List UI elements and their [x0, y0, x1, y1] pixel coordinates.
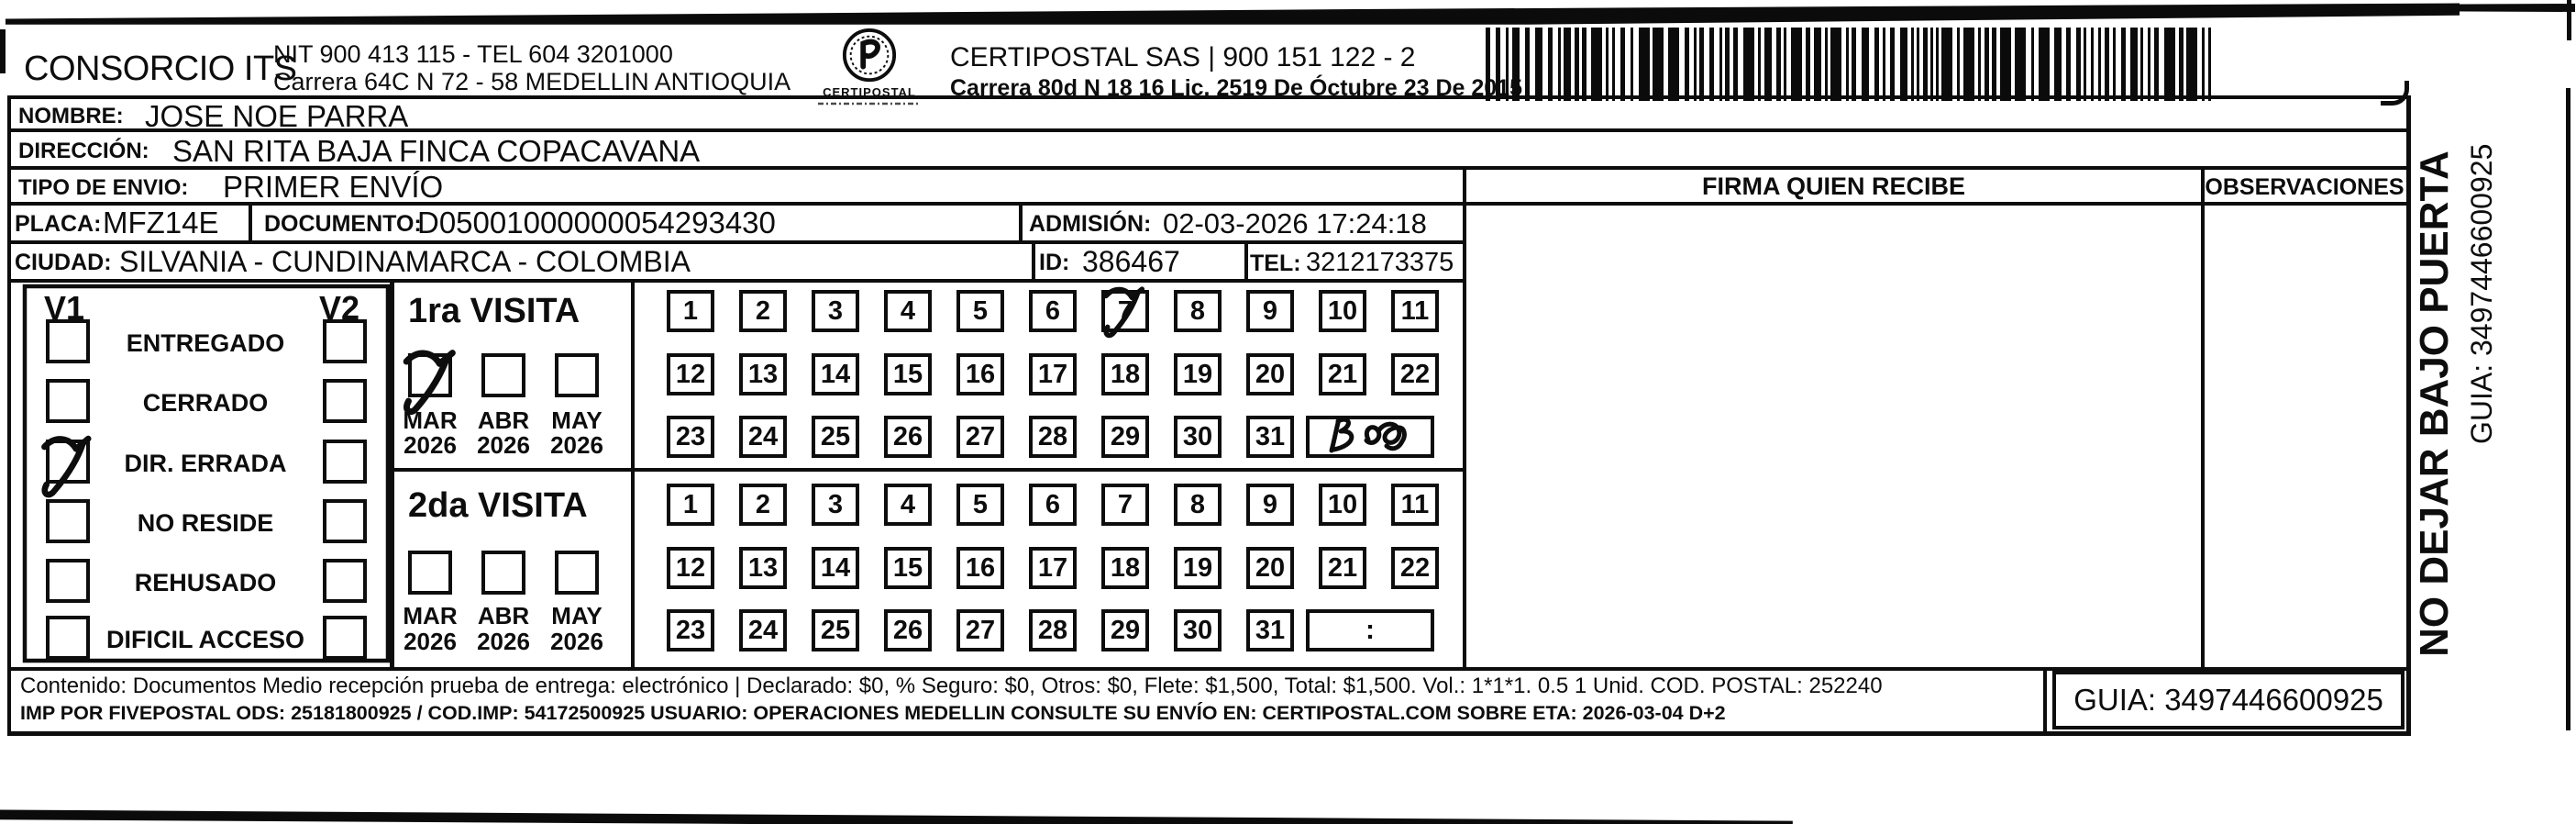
status-checkbox-v1 — [46, 559, 90, 603]
status-checkbox-v2 — [323, 440, 367, 484]
visit2-month-name: MAR — [401, 603, 459, 630]
visit2-day-5: 5 — [956, 484, 1004, 526]
visit1-day-1: 1 — [667, 290, 714, 332]
visit1-day-23: 23 — [667, 416, 714, 458]
visit2-day-28: 28 — [1029, 609, 1077, 651]
visit2-month-checkbox — [481, 551, 525, 595]
scan-artifact-right-line — [2566, 88, 2570, 730]
visit2-title: 2da VISITA — [408, 486, 588, 527]
visit2-day-31: 31 — [1246, 609, 1294, 651]
visit2-day-4: 4 — [884, 484, 932, 526]
tipo-envio-label: TIPO DE ENVIO: — [18, 175, 188, 201]
documento-value: D05001000000054293430 — [417, 206, 776, 240]
visit1-month-mark — [399, 342, 463, 419]
visit1-month-checkbox — [555, 353, 599, 397]
visit2-month-year: 2026 — [474, 629, 533, 656]
visit2-day-19: 19 — [1174, 547, 1222, 589]
scan-artifact-right-tick — [2567, 0, 2571, 40]
ciudad-value: SILVANIA - CUNDINAMARCA - COLOMBIA — [119, 245, 691, 279]
status-checkbox-v2 — [323, 379, 367, 423]
status-label: DIR. ERRADA — [92, 450, 319, 478]
visit2-month-checkbox — [408, 551, 452, 595]
visit2-day-21: 21 — [1319, 547, 1366, 589]
visit1-day-3: 3 — [812, 290, 859, 332]
firma-header: FIRMA QUIEN RECIBE — [1466, 173, 2201, 201]
visit2-day-6: 6 — [1029, 484, 1077, 526]
visit1-title: 1ra VISITA — [408, 292, 580, 332]
visit2-day-3: 3 — [812, 484, 859, 526]
visit1-month-year: 2026 — [474, 432, 533, 460]
handwritten-scribble — [1308, 414, 1432, 460]
certipostal-logo-icon — [824, 28, 915, 84]
scan-artifact-top-streak — [2403, 4, 2575, 12]
status-checkbox-v2 — [323, 616, 367, 660]
company-right-line1: CERTIPOSTAL SAS | 900 151 122 - 2 — [950, 42, 1416, 74]
handwritten-check-status-v1 — [35, 429, 101, 502]
admision-value: 02-03-2026 17:24:18 — [1163, 207, 1427, 240]
visit2-day-24: 24 — [739, 609, 787, 651]
visit2-day-20: 20 — [1246, 547, 1294, 589]
visit2-month-checkbox — [555, 551, 599, 595]
visit2-day-7: 7 — [1101, 484, 1149, 526]
scanned-delivery-form: CONSORCIO ITS NIT 900 413 115 - TEL 604 … — [0, 0, 2576, 824]
barcode — [1484, 28, 2223, 101]
visit1-day-15: 15 — [884, 353, 932, 395]
side-warning: NO DEJAR BAJO PUERTA — [2412, 117, 2459, 690]
company-right-line2: Carrera 80d N 18 16 Lic. 2519 De Óctubre… — [950, 75, 1522, 102]
status-label: DIFICIL ACCESO — [92, 626, 319, 654]
visit2-day-15: 15 — [884, 547, 932, 589]
tipo-envio-value: PRIMER ENVÍO — [223, 170, 443, 205]
visit1-day-6: 6 — [1029, 290, 1077, 332]
visit1-day-14: 14 — [812, 353, 859, 395]
status-label: REHUSADO — [92, 569, 319, 597]
visit1-day-13: 13 — [739, 353, 787, 395]
status-label: CERRADO — [92, 389, 319, 418]
status-checkbox-v1 — [46, 379, 90, 423]
visit2-month-year: 2026 — [401, 629, 459, 656]
visit2-day-13: 13 — [739, 547, 787, 589]
visit2-day-27: 27 — [956, 609, 1004, 651]
company-left-name: CONSORCIO ITS — [24, 50, 297, 90]
status-checkbox-v1 — [46, 319, 90, 363]
status-checkbox-v2 — [323, 319, 367, 363]
tel-value: 3212173375 — [1306, 248, 1454, 278]
placa-label: PLACA: — [15, 211, 101, 238]
visit1-day-5: 5 — [956, 290, 1004, 332]
scan-artifact-left-mark — [0, 29, 6, 73]
visit1-day-26: 26 — [884, 416, 932, 458]
visit2-day-9: 9 — [1246, 484, 1294, 526]
status-label: NO RESIDE — [92, 509, 319, 538]
direccion-value: SAN RITA BAJA FINCA COPACAVANA — [172, 134, 700, 169]
logo-caption: CERTIPOSTAL — [807, 86, 932, 100]
logo-tagline-squiggle — [816, 101, 923, 106]
nombre-value: JOSE NOE PARRA — [145, 99, 408, 134]
visit1-day-mark — [1097, 281, 1154, 341]
visit2-time-box: : — [1306, 609, 1434, 651]
status-label: ENTREGADO — [92, 329, 319, 358]
placa-value: MFZ14E — [103, 206, 219, 240]
side-guia: GUIA: 3497446600925 — [2465, 152, 2499, 444]
visit1-day-2: 2 — [739, 290, 787, 332]
visit1-day-10: 10 — [1319, 290, 1366, 332]
visit2-day-17: 17 — [1029, 547, 1077, 589]
visit2-day-16: 16 — [956, 547, 1004, 589]
visit1-day-4: 4 — [884, 290, 932, 332]
visit1-month-year: 2026 — [547, 432, 606, 460]
status-checkbox-v2 — [323, 559, 367, 603]
observaciones-header: OBSERVACIONES — [2203, 174, 2406, 201]
visit2-month-name: MAY — [547, 603, 606, 630]
admision-label: ADMISIÓN: — [1029, 211, 1151, 238]
footer-line2: IMP POR FIVEPOSTAL ODS: 25181800925 / CO… — [20, 702, 1726, 725]
visit2-day-18: 18 — [1101, 547, 1149, 589]
visit1-day-12: 12 — [667, 353, 714, 395]
visit1-day-9: 9 — [1246, 290, 1294, 332]
visit1-note-box — [1306, 416, 1434, 458]
visit1-month-year: 2026 — [401, 432, 459, 460]
visit2-day-25: 25 — [812, 609, 859, 651]
visit1-day-21: 21 — [1319, 353, 1366, 395]
visit1-day-18: 18 — [1101, 353, 1149, 395]
id-value: 386467 — [1082, 245, 1180, 279]
visit2-day-29: 29 — [1101, 609, 1149, 651]
status-checkbox-v1 — [46, 499, 90, 543]
direccion-label: DIRECCIÓN: — [18, 139, 149, 164]
visit1-day-8: 8 — [1174, 290, 1222, 332]
visit1-day-25: 25 — [812, 416, 859, 458]
footer-guia: GUIA: 3497446600925 — [2054, 683, 2403, 718]
visit1-day-19: 19 — [1174, 353, 1222, 395]
visit2-day-8: 8 — [1174, 484, 1222, 526]
footer-line1: Contenido: Documentos Medio recepción pr… — [20, 674, 1883, 699]
visit2-day-10: 10 — [1319, 484, 1366, 526]
visit2-day-26: 26 — [884, 609, 932, 651]
visit1-day-22: 22 — [1391, 353, 1439, 395]
visit1-day-16: 16 — [956, 353, 1004, 395]
status-checkbox-v2 — [323, 499, 367, 543]
visit1-day-27: 27 — [956, 416, 1004, 458]
visit2-day-30: 30 — [1174, 609, 1222, 651]
visit1-day-20: 20 — [1246, 353, 1294, 395]
visit1-day-24: 24 — [739, 416, 787, 458]
visit2-day-2: 2 — [739, 484, 787, 526]
company-left-line2: Carrera 64C N 72 - 58 MEDELLIN ANTIOQUIA — [273, 68, 790, 96]
visit2-day-1: 1 — [667, 484, 714, 526]
visit1-day-30: 30 — [1174, 416, 1222, 458]
ciudad-label: CIUDAD: — [15, 250, 112, 276]
visit2-day-12: 12 — [667, 547, 714, 589]
visit2-day-11: 11 — [1391, 484, 1439, 526]
visit1-month-checkbox — [481, 353, 525, 397]
tel-label: TEL: — [1250, 251, 1301, 277]
status-checkbox-v1 — [46, 616, 90, 660]
visit1-day-31: 31 — [1246, 416, 1294, 458]
visit2-day-23: 23 — [667, 609, 714, 651]
visit1-day-28: 28 — [1029, 416, 1077, 458]
id-label: ID: — [1039, 250, 1069, 276]
company-left-line1: NIT 900 413 115 - TEL 604 3201000 — [273, 40, 673, 69]
visit2-day-22: 22 — [1391, 547, 1439, 589]
visit2-month-year: 2026 — [547, 629, 606, 656]
documento-label: DOCUMENTO: — [264, 211, 422, 238]
visit1-day-11: 11 — [1391, 290, 1439, 332]
visit2-day-14: 14 — [812, 547, 859, 589]
nombre-label: NOMBRE: — [18, 104, 124, 129]
visit1-day-29: 29 — [1101, 416, 1149, 458]
visit2-month-name: ABR — [474, 603, 533, 630]
visit1-day-17: 17 — [1029, 353, 1077, 395]
